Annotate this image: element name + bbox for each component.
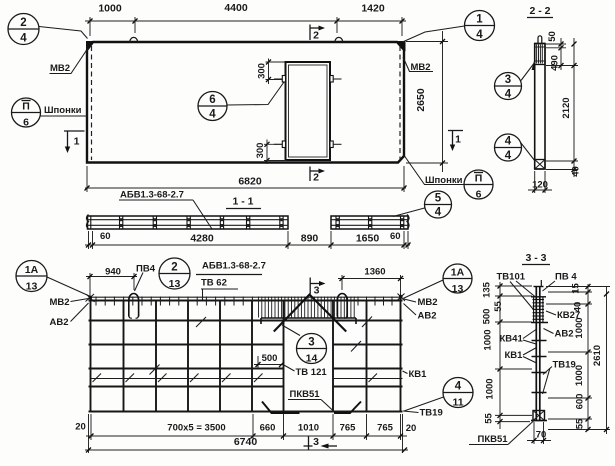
svg-text:765: 765 xyxy=(377,423,394,434)
svg-text:2120: 2120 xyxy=(561,97,572,118)
svg-text:600: 600 xyxy=(575,394,586,410)
svg-text:4: 4 xyxy=(505,89,512,101)
svg-text:4: 4 xyxy=(20,33,27,45)
svg-text:70: 70 xyxy=(536,430,547,441)
svg-text:4280: 4280 xyxy=(190,233,214,245)
svg-text:2610: 2610 xyxy=(592,345,603,366)
svg-text:890: 890 xyxy=(301,233,319,245)
svg-text:15: 15 xyxy=(571,283,582,294)
svg-text:2: 2 xyxy=(313,172,319,184)
svg-text:2: 2 xyxy=(171,262,177,274)
svg-text:ПВ4: ПВ4 xyxy=(136,264,156,275)
svg-text:13: 13 xyxy=(26,281,38,293)
svg-text:2: 2 xyxy=(313,30,319,42)
svg-text:11: 11 xyxy=(452,397,463,409)
svg-text:1010: 1010 xyxy=(298,423,319,434)
svg-text:1000: 1000 xyxy=(98,3,122,15)
svg-text:2 - 2: 2 - 2 xyxy=(529,5,550,17)
svg-text:660: 660 xyxy=(260,423,276,434)
svg-text:ПКВ51: ПКВ51 xyxy=(478,434,509,445)
svg-text:ТВ 62: ТВ 62 xyxy=(201,278,227,289)
svg-text:1А: 1А xyxy=(25,264,39,276)
svg-text:МВ2: МВ2 xyxy=(50,63,70,74)
svg-text:ТВ19: ТВ19 xyxy=(553,360,576,371)
svg-text:1650: 1650 xyxy=(356,233,380,245)
svg-text:4400: 4400 xyxy=(224,2,248,14)
svg-text:3: 3 xyxy=(313,436,319,448)
svg-text:55: 55 xyxy=(484,413,495,424)
svg-text:КВ41: КВ41 xyxy=(500,334,524,345)
svg-text:120: 120 xyxy=(532,180,548,191)
svg-text:5: 5 xyxy=(435,193,442,205)
svg-text:4: 4 xyxy=(435,207,442,219)
svg-text:14: 14 xyxy=(306,353,318,365)
svg-text:П: П xyxy=(22,101,30,113)
svg-text:АВ2: АВ2 xyxy=(50,317,69,328)
svg-text:3: 3 xyxy=(505,74,511,86)
svg-text:20: 20 xyxy=(406,423,417,434)
svg-text:6: 6 xyxy=(476,189,482,201)
svg-text:765: 765 xyxy=(340,423,357,434)
svg-text:1000: 1000 xyxy=(574,365,585,386)
svg-text:13: 13 xyxy=(169,278,181,290)
svg-text:4: 4 xyxy=(455,381,462,393)
svg-text:300: 300 xyxy=(257,63,268,79)
svg-text:2650: 2650 xyxy=(415,88,427,112)
svg-text:40: 40 xyxy=(571,166,582,177)
svg-text:ТВ19: ТВ19 xyxy=(420,408,443,419)
svg-text:1А: 1А xyxy=(451,267,465,279)
svg-text:60: 60 xyxy=(390,231,401,242)
svg-text:6: 6 xyxy=(209,94,215,106)
svg-text:4: 4 xyxy=(505,136,512,148)
svg-text:МВ2: МВ2 xyxy=(50,297,70,308)
svg-text:4: 4 xyxy=(505,150,512,162)
svg-text:3: 3 xyxy=(314,285,320,297)
svg-text:55: 55 xyxy=(493,301,504,312)
svg-text:ТВ101: ТВ101 xyxy=(497,272,526,283)
svg-text:АВ2: АВ2 xyxy=(418,311,437,322)
svg-text:АВ2: АВ2 xyxy=(555,329,574,340)
svg-text:1: 1 xyxy=(476,14,483,26)
svg-text:ПВ 4: ПВ 4 xyxy=(555,272,577,283)
svg-text:700х5 = 3500: 700х5 = 3500 xyxy=(167,423,225,434)
svg-text:20: 20 xyxy=(75,422,86,433)
svg-text:55: 55 xyxy=(575,418,586,429)
svg-text:940: 940 xyxy=(105,267,121,278)
svg-text:КВ1: КВ1 xyxy=(409,369,428,380)
svg-text:1 - 1: 1 - 1 xyxy=(232,196,253,208)
svg-text:Шпонки: Шпонки xyxy=(44,105,82,116)
svg-text:3: 3 xyxy=(308,337,314,349)
svg-text:6740: 6740 xyxy=(234,436,258,448)
svg-text:1420: 1420 xyxy=(361,3,385,15)
svg-text:ПКВ51: ПКВ51 xyxy=(290,389,321,400)
svg-text:4: 4 xyxy=(209,109,216,121)
svg-text:1000: 1000 xyxy=(485,378,496,399)
svg-text:КВ1: КВ1 xyxy=(505,350,524,361)
svg-text:АБВ1.3-68-2.7: АБВ1.3-68-2.7 xyxy=(202,261,266,272)
svg-text:13: 13 xyxy=(452,283,464,295)
svg-text:500: 500 xyxy=(482,309,493,325)
svg-text:1000: 1000 xyxy=(483,329,494,350)
svg-text:МВ2: МВ2 xyxy=(418,297,438,308)
svg-text:500: 500 xyxy=(262,353,278,364)
svg-text:50: 50 xyxy=(547,31,558,42)
svg-text:135: 135 xyxy=(482,281,493,298)
svg-text:490: 490 xyxy=(550,55,561,71)
svg-text:6: 6 xyxy=(23,117,29,129)
svg-text:ТВ 121: ТВ 121 xyxy=(296,367,328,378)
svg-text:2: 2 xyxy=(20,17,26,29)
svg-text:40: 40 xyxy=(573,302,584,313)
svg-text:4: 4 xyxy=(476,29,483,41)
svg-text:3 - 3: 3 - 3 xyxy=(525,252,546,264)
svg-text:П: П xyxy=(475,173,483,185)
svg-text:1360: 1360 xyxy=(364,267,385,278)
svg-text:300: 300 xyxy=(255,143,266,159)
svg-text:6820: 6820 xyxy=(238,176,262,188)
svg-text:1: 1 xyxy=(455,134,461,146)
svg-text:АБВ1.3-68-2.7: АБВ1.3-68-2.7 xyxy=(120,190,184,201)
svg-text:1000: 1000 xyxy=(574,317,585,338)
svg-text:60: 60 xyxy=(100,231,111,242)
svg-text:1: 1 xyxy=(74,136,80,148)
